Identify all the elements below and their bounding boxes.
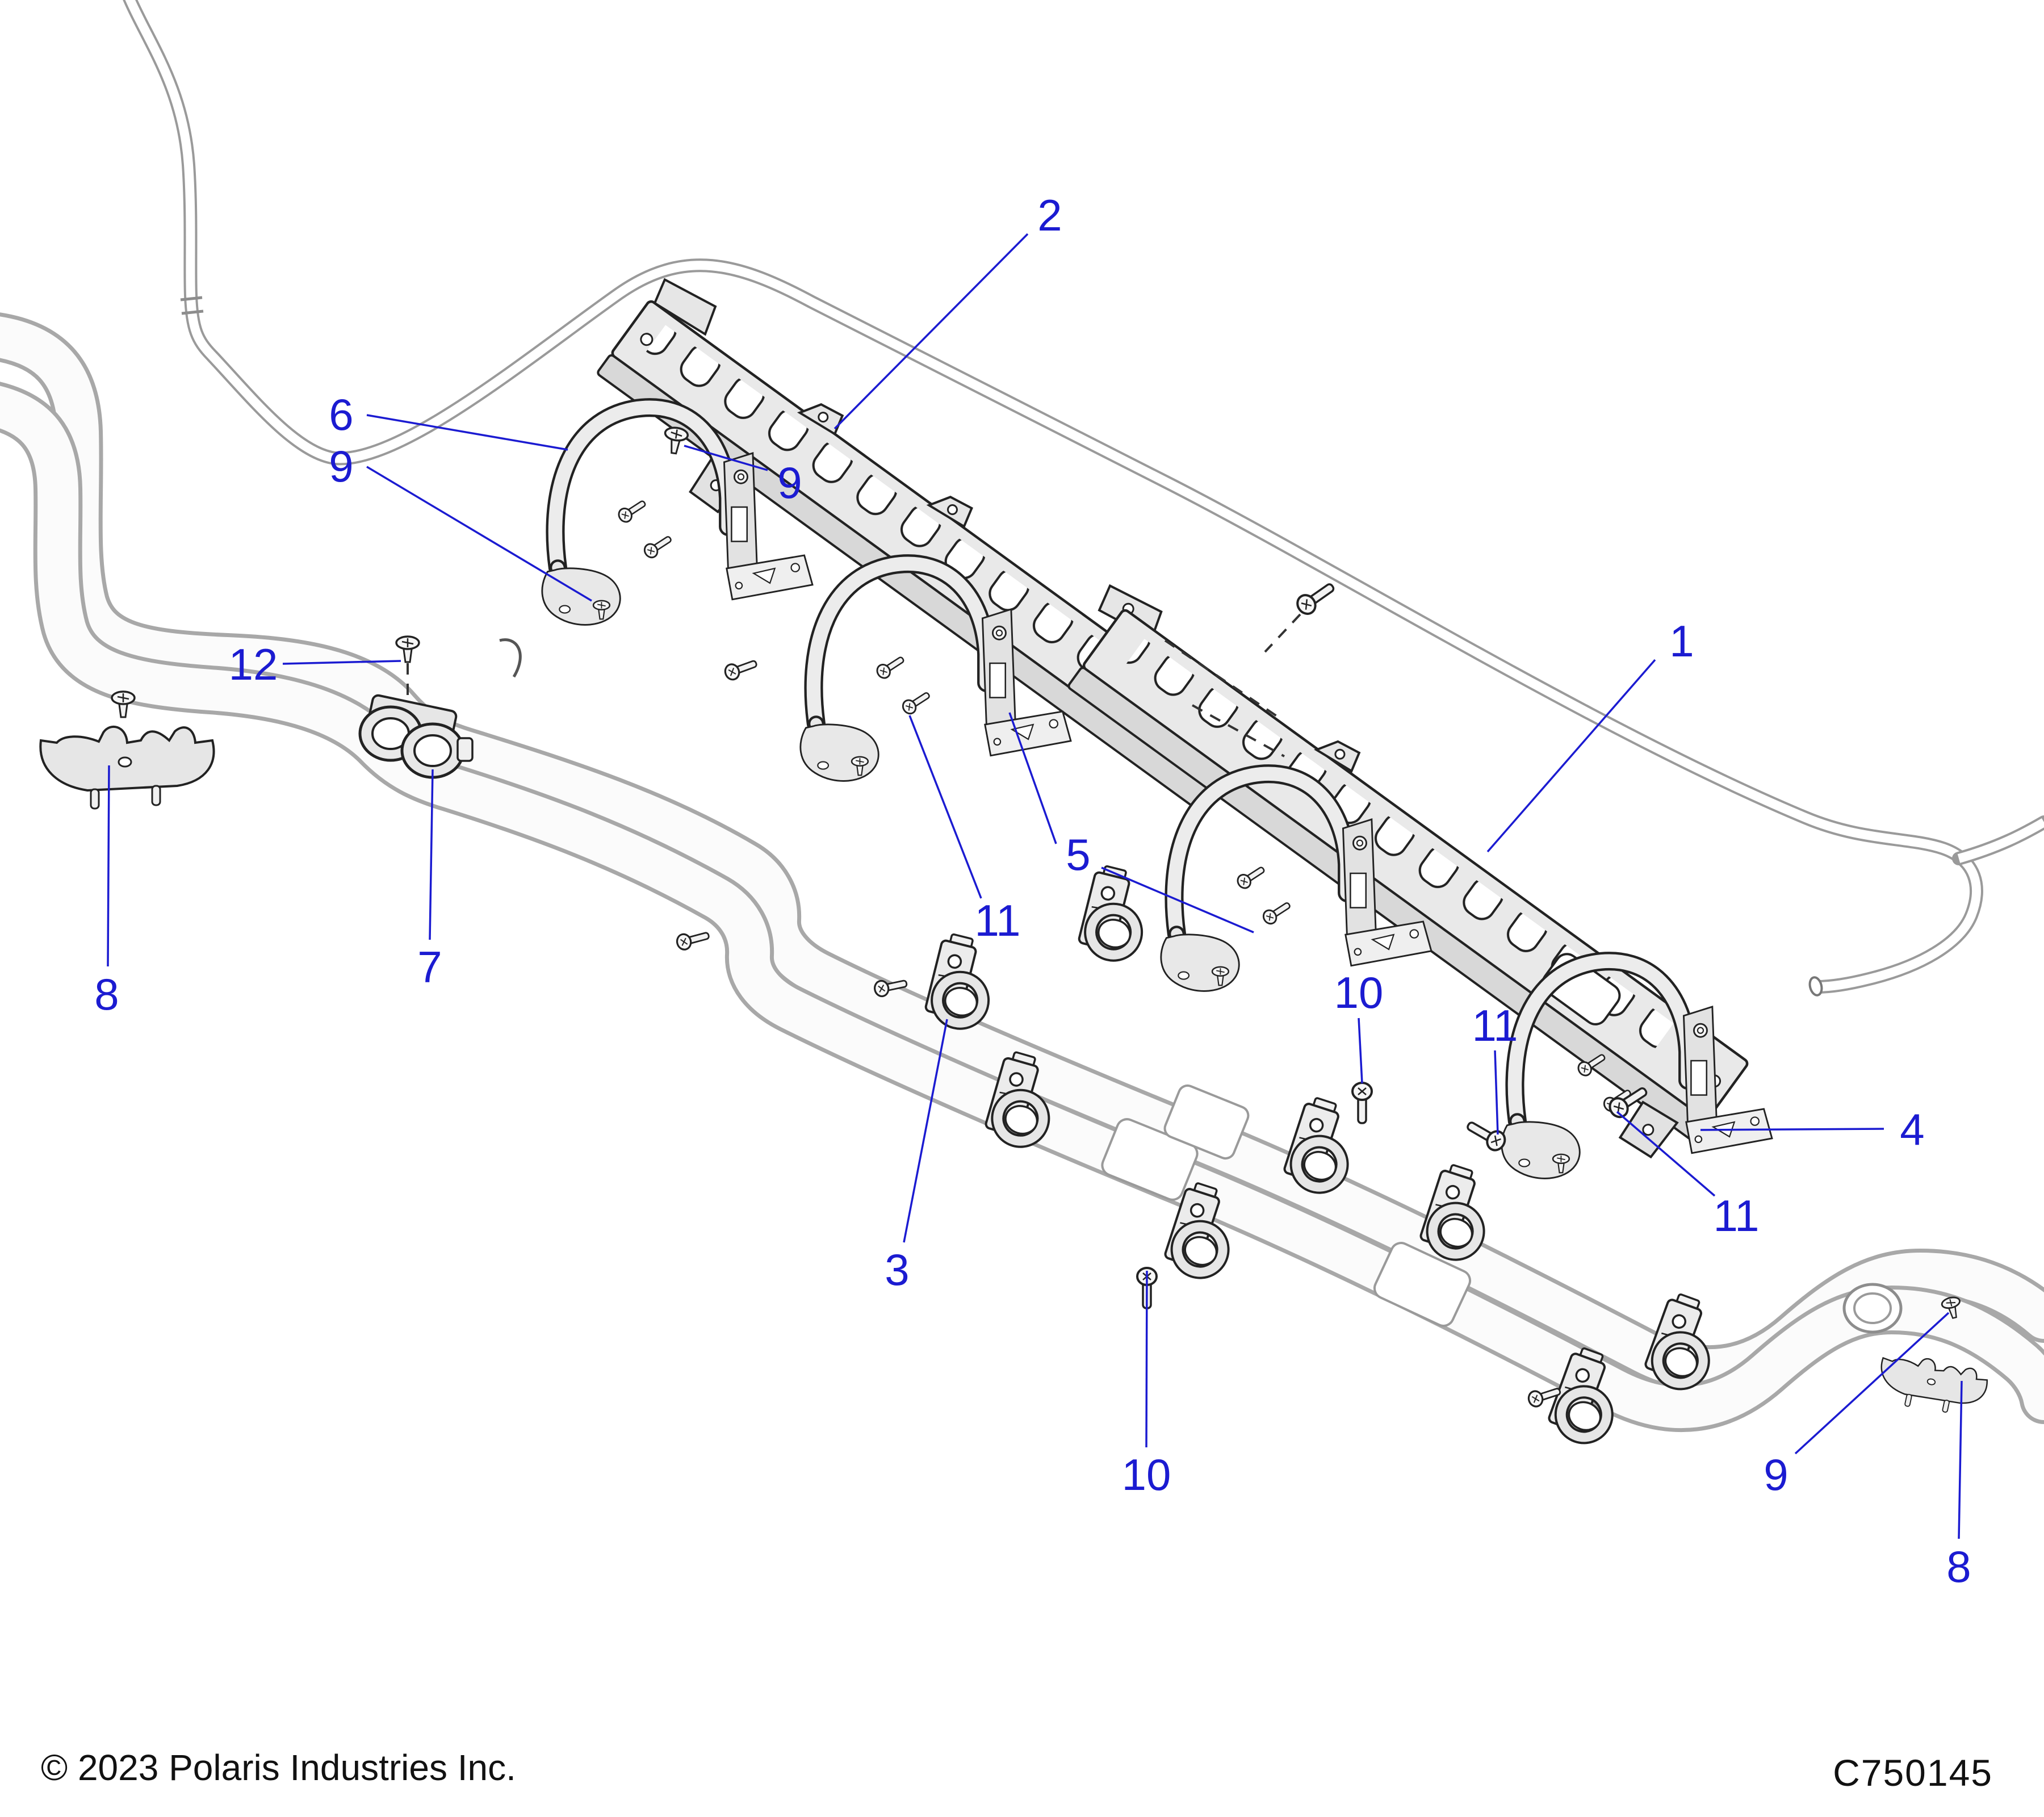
callout-3: 3 <box>885 1245 909 1295</box>
diagram-code: C750145 <box>1833 1752 1993 1794</box>
leader-line <box>1959 1381 1962 1539</box>
callout-10: 10 <box>1334 968 1384 1018</box>
callout-8: 8 <box>94 969 119 1019</box>
hose-art <box>0 335 2044 1408</box>
loose-fasteners <box>112 426 1963 1408</box>
callout-1: 1 <box>1669 616 1694 666</box>
leader-line <box>108 765 109 966</box>
callout-9: 9 <box>777 458 802 508</box>
callout-11: 11 <box>975 895 1021 945</box>
leader-line <box>1495 1050 1498 1134</box>
leader-line <box>910 715 981 898</box>
leader-line <box>1146 1271 1147 1447</box>
leader-line <box>1359 1018 1362 1083</box>
parts-diagram-page: 123456788999101011111112 © 2023 Polaris … <box>0 0 2044 1817</box>
p-clamps <box>924 864 1723 1443</box>
callout-12: 12 <box>229 639 278 689</box>
callout-11: 11 <box>1472 1000 1518 1050</box>
callout-2: 2 <box>1037 190 1062 240</box>
callout-10: 10 <box>1122 1450 1171 1500</box>
diagram-canvas: 123456788999101011111112 © 2023 Polaris … <box>0 0 2044 1817</box>
leader-line <box>1700 1129 1884 1130</box>
callout-8: 8 <box>1946 1542 1971 1592</box>
callout-5: 5 <box>1066 830 1090 880</box>
callout-9: 9 <box>1764 1450 1788 1500</box>
clamp-assemblies <box>542 408 1772 1179</box>
callout-6: 6 <box>329 390 353 439</box>
leader-line <box>1488 660 1655 852</box>
callout-11: 11 <box>1714 1191 1760 1241</box>
callout-9: 9 <box>329 441 353 491</box>
callout-7: 7 <box>417 942 442 992</box>
callout-4: 4 <box>1900 1104 1924 1154</box>
copyright-text: © 2023 Polaris Industries Inc. <box>41 1747 516 1788</box>
